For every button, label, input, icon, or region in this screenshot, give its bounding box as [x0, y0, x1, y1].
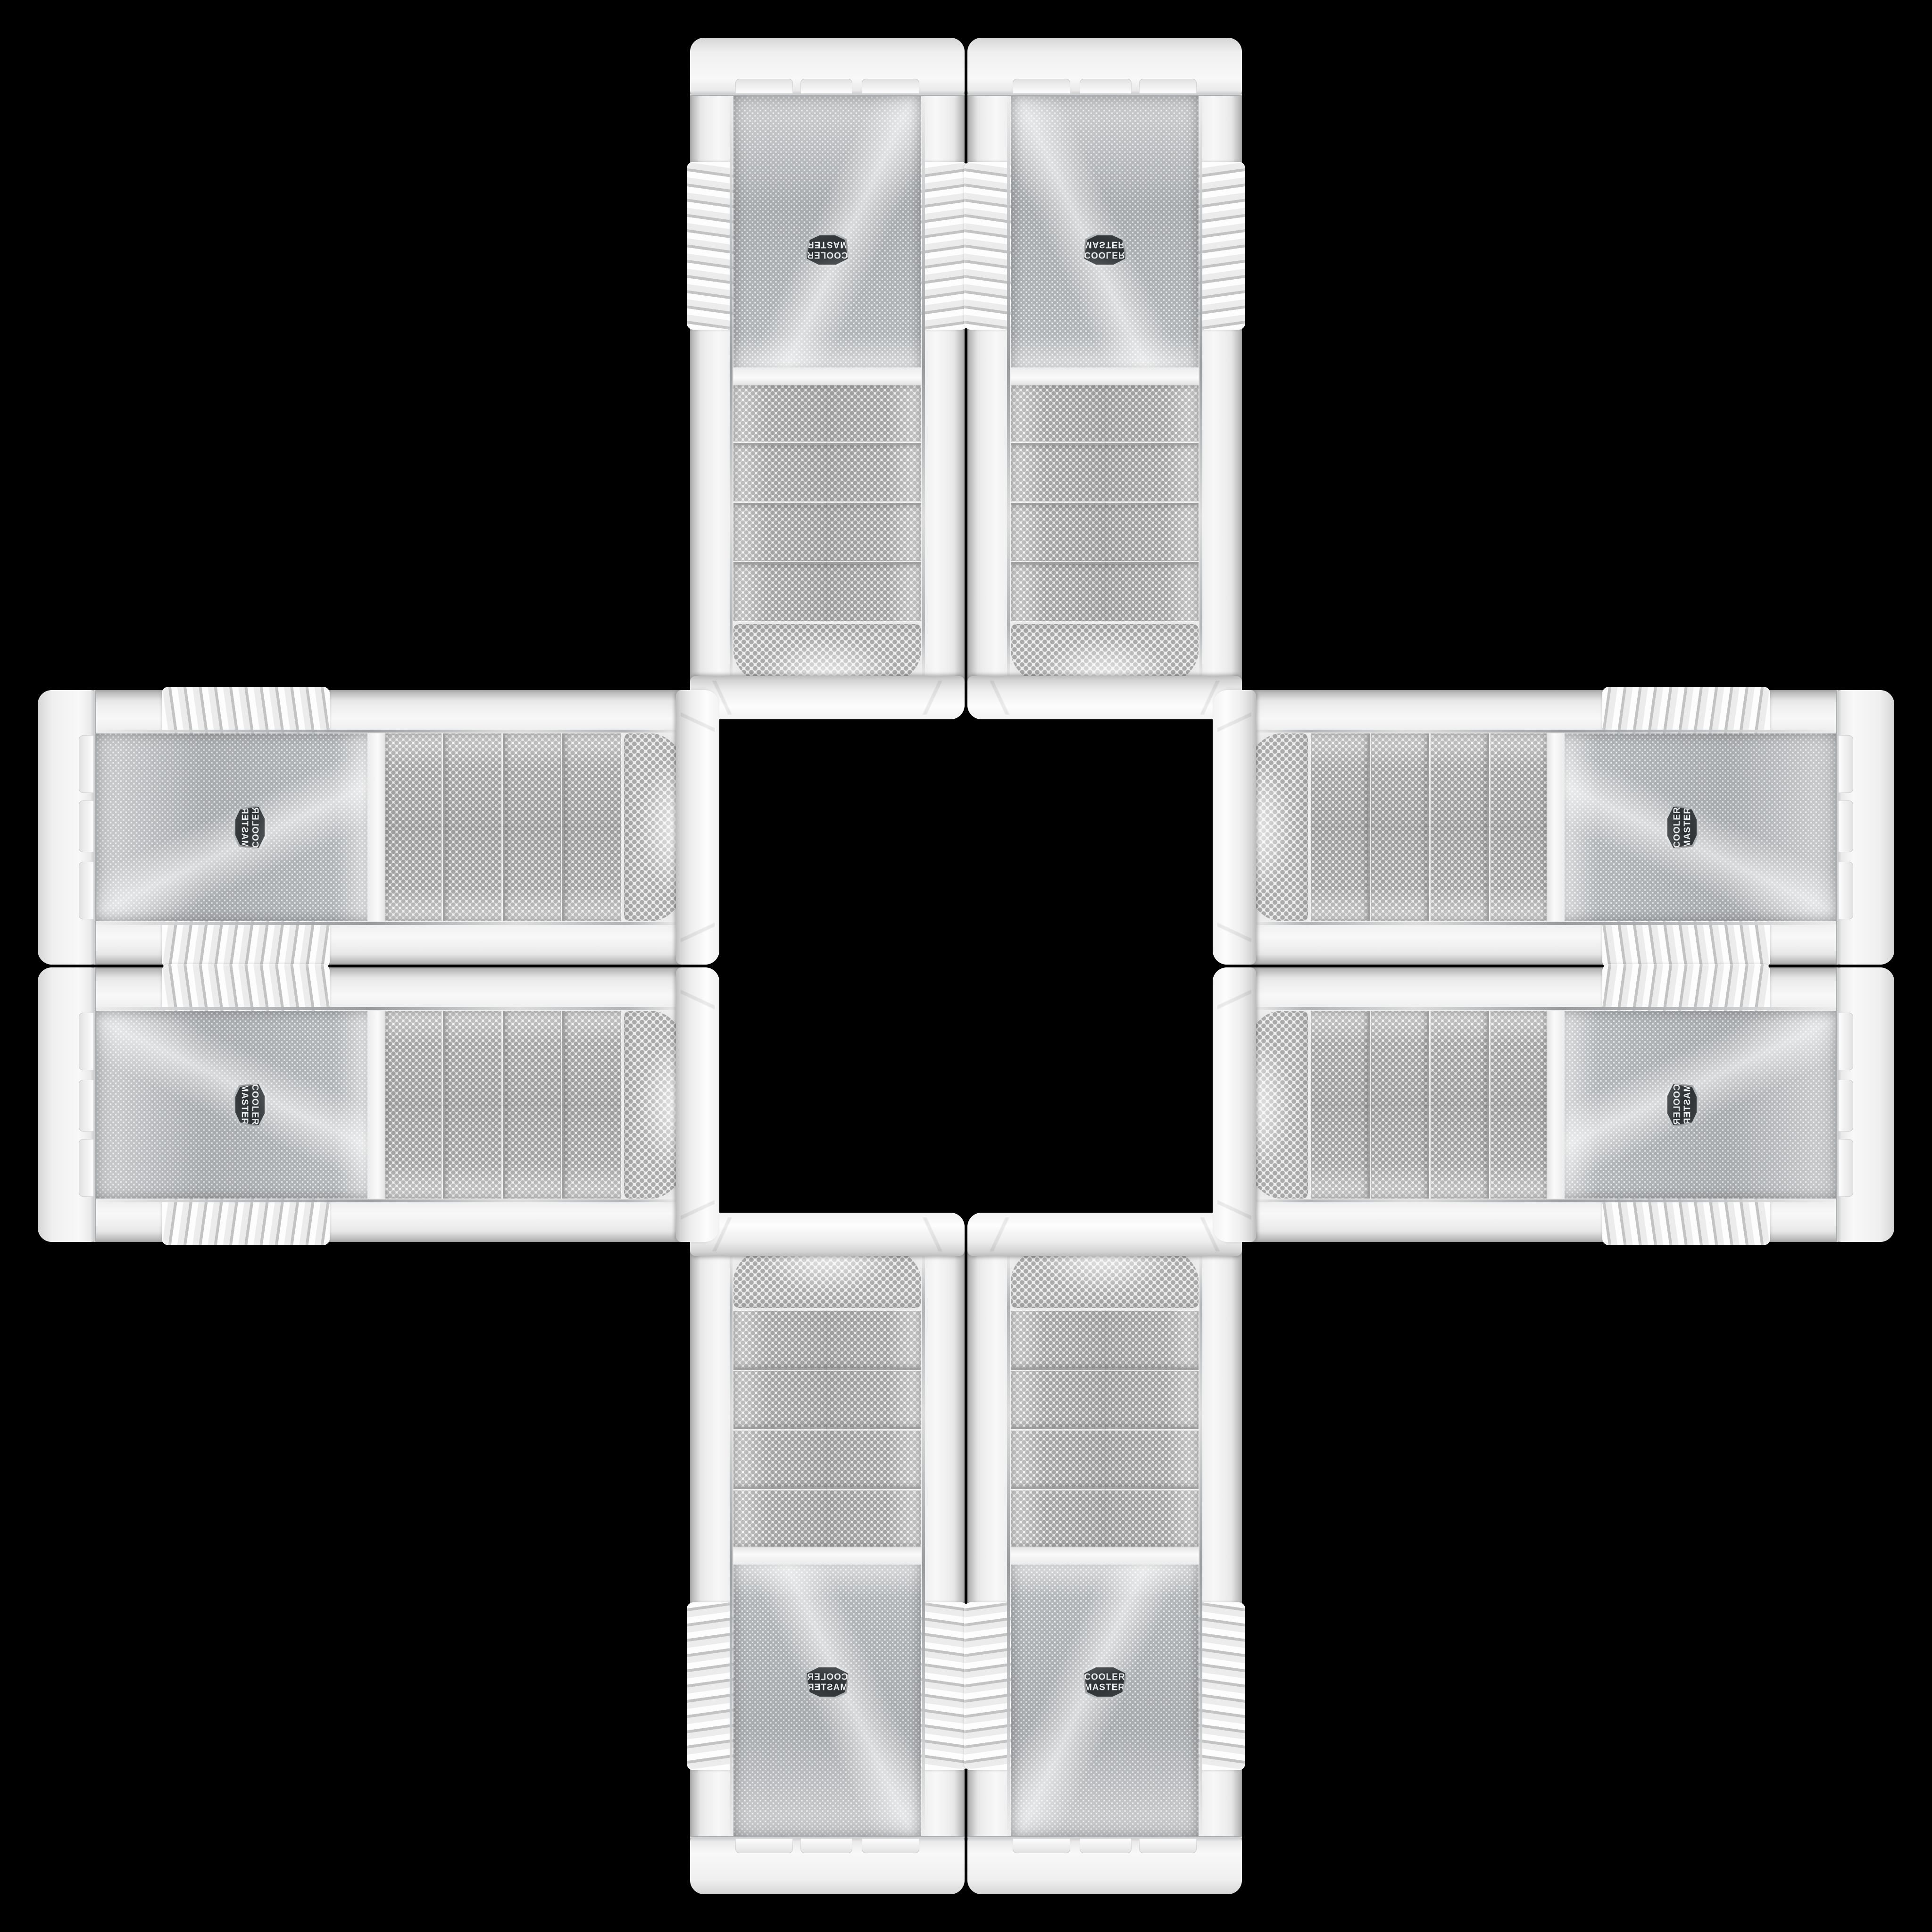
bezel-divider [367, 733, 385, 921]
cooler-master-badge: COOLER MASTER [1081, 233, 1129, 266]
drive-bay-cover [1011, 565, 1199, 623]
left-rail-grip-ribs [162, 921, 330, 968]
bottom-cap-chrome-seam [1836, 690, 1838, 965]
brand-line-2: MASTER [807, 1683, 848, 1692]
left-rail-grip-ribs [964, 162, 1011, 330]
case-panel-right-top: COOLER MASTER [1213, 690, 1894, 965]
cooler-master-badge: COOLER MASTER [1666, 1081, 1699, 1129]
right-rail-grip-ribs [1198, 1602, 1245, 1770]
case-panel-bottom-right: COOLER MASTER [967, 1213, 1242, 1894]
left-rail-grip-ribs [162, 964, 330, 1011]
drive-bay-cover [565, 733, 623, 921]
bottom-cap-tab [1839, 1139, 1853, 1197]
top-cap [967, 1213, 1242, 1256]
brand-line-1: COOLER [1673, 807, 1682, 848]
brand-line-1: COOLER [251, 1084, 260, 1125]
bottom-cap-tab [862, 79, 919, 93]
left-chrome-trim [922, 1234, 925, 1836]
drive-bay-cover [1489, 1011, 1547, 1199]
bottom-cap-tab [1839, 800, 1853, 852]
drive-bay-cover [733, 445, 921, 503]
bottom-cap-tab [1139, 79, 1197, 93]
brand-line-1: COOLER [1673, 1084, 1682, 1125]
drive-bay-cover [733, 565, 921, 623]
right-rail-grip-ribs [1602, 1198, 1770, 1245]
bezel-divider [1547, 733, 1565, 921]
bottom-cap [967, 1836, 1242, 1894]
product-collage: COOLER MASTER [0, 0, 1932, 1932]
left-chrome-trim [1007, 1234, 1010, 1836]
brand-line-2: MASTER [1084, 1683, 1125, 1692]
brand-line-2: MASTER [241, 807, 250, 848]
drive-bay-cover [733, 1310, 921, 1368]
bottom-cap-tab [79, 1139, 93, 1197]
drive-bay-cover [1370, 733, 1428, 921]
brand-line-2: MASTER [807, 241, 848, 250]
drive-bay-cover [1011, 1310, 1199, 1368]
left-chrome-trim [922, 96, 925, 698]
bottom-cap-tab [1839, 862, 1853, 919]
drive-bay-cover [565, 1011, 623, 1199]
drive-bay-cover [505, 1011, 563, 1199]
bezel-divider [733, 1547, 921, 1565]
front-intake-mesh: COOLER MASTER [1565, 1011, 1836, 1199]
bottom-cap-tab [1839, 1080, 1853, 1132]
right-chrome-trim [1199, 96, 1202, 698]
brand-line-1: COOLER [1084, 1673, 1125, 1682]
drive-bay-cover [445, 733, 503, 921]
case-panel-right-bottom: COOLER MASTER [1213, 967, 1894, 1242]
pc-case-front-panel: COOLER MASTER [1213, 967, 1894, 1242]
bottom-cap-tab [1080, 79, 1132, 93]
drive-bay-cover [1429, 1011, 1487, 1199]
left-chrome-trim [1007, 96, 1010, 698]
bottom-cap-tab [862, 1839, 919, 1853]
drive-bay-cover [1011, 1370, 1199, 1428]
right-chrome-trim [730, 96, 733, 698]
right-chrome-trim [730, 1234, 733, 1836]
drive-bay-cover [1310, 733, 1368, 921]
bottom-cap [38, 690, 96, 965]
cooler-master-logo-icon: COOLER MASTER [1667, 1083, 1697, 1127]
cooler-master-badge: COOLER MASTER [803, 1666, 851, 1699]
right-chrome-trim [1199, 1234, 1202, 1836]
front-intake-mesh: COOLER MASTER [96, 1011, 367, 1199]
cooler-master-badge: COOLER MASTER [803, 233, 851, 266]
bottom-cap-tab [1080, 1839, 1132, 1853]
drive-bay-cover [385, 733, 443, 921]
case-panel-top-right: COOLER MASTER [967, 38, 1242, 719]
left-chrome-trim [96, 922, 698, 925]
cooler-master-logo-icon: COOLER MASTER [235, 1083, 265, 1127]
drive-bay-cover [1429, 733, 1487, 921]
bottom-cap-tab [800, 79, 852, 93]
top-cap [690, 1213, 965, 1256]
bottom-cap-chrome-seam [1836, 967, 1838, 1242]
top-cap [1213, 967, 1256, 1242]
cooler-master-badge: COOLER MASTER [233, 1081, 266, 1129]
cooler-master-logo-icon: COOLER MASTER [1083, 1667, 1127, 1697]
cooler-master-logo-icon: COOLER MASTER [1667, 805, 1697, 849]
drive-bay-covers [733, 385, 921, 622]
drive-bay-cover [1489, 733, 1547, 921]
bottom-cap-tab [1139, 1839, 1197, 1853]
bottom-cap [967, 38, 1242, 96]
top-cap [676, 967, 719, 1242]
bottom-cap-chrome-seam [967, 1836, 1242, 1838]
drive-bay-cover [733, 1429, 921, 1487]
front-intake-mesh: COOLER MASTER [733, 1565, 921, 1836]
front-intake-mesh: COOLER MASTER [96, 733, 367, 921]
cooler-master-badge: COOLER MASTER [1081, 1666, 1129, 1699]
drive-bay-covers [1310, 733, 1547, 921]
drive-bay-covers [1011, 385, 1199, 622]
bottom-cap-tab [800, 1839, 852, 1853]
right-chrome-trim [1234, 1199, 1836, 1202]
right-rail-grip-ribs [1602, 687, 1770, 734]
bottom-cap-tab [735, 79, 793, 93]
top-cap [967, 676, 1242, 719]
drive-bay-cover [1011, 385, 1199, 443]
brand-line-2: MASTER [1683, 807, 1692, 848]
drive-bay-cover [385, 1011, 443, 1199]
drive-bay-cover [505, 733, 563, 921]
right-rail-grip-ribs [687, 1602, 734, 1770]
left-rail-grip-ribs [1602, 964, 1770, 1011]
front-intake-mesh: COOLER MASTER [1011, 96, 1199, 367]
top-cap [676, 690, 719, 965]
drive-bay-covers [733, 1310, 921, 1547]
right-chrome-trim [1234, 730, 1836, 733]
drive-bay-cover [445, 1011, 503, 1199]
right-chrome-trim [96, 730, 698, 733]
bottom-cap-chrome-seam [967, 94, 1242, 96]
bezel-divider [367, 1011, 385, 1199]
drive-bay-cover [1011, 1489, 1199, 1547]
cooler-master-logo-icon: COOLER MASTER [1083, 235, 1127, 265]
bottom-cap [1836, 967, 1894, 1242]
bottom-cap-tab [1839, 1013, 1853, 1070]
left-rail-grip-ribs [921, 162, 968, 330]
left-chrome-trim [96, 1007, 698, 1010]
bottom-cap-tab [79, 800, 93, 852]
brand-line-1: COOLER [807, 251, 848, 260]
bottom-cap [690, 1836, 965, 1894]
bottom-cap-chrome-seam [94, 690, 96, 965]
bezel-divider [733, 367, 921, 385]
brand-line-1: COOLER [807, 1673, 848, 1682]
right-rail-grip-ribs [162, 687, 330, 734]
bottom-cap-tab [79, 862, 93, 919]
brand-line-2: MASTER [1084, 241, 1125, 250]
drive-bay-covers [385, 733, 622, 921]
right-rail-grip-ribs [162, 1198, 330, 1245]
drive-bay-cover [1011, 1429, 1199, 1487]
bottom-cap-chrome-seam [690, 94, 965, 96]
bezel-divider [1547, 1011, 1565, 1199]
front-intake-mesh: COOLER MASTER [1565, 733, 1836, 921]
bottom-cap-tab [735, 1839, 793, 1853]
bottom-cap-chrome-seam [94, 967, 96, 1242]
drive-bay-covers [385, 1011, 622, 1199]
cooler-master-badge: COOLER MASTER [1666, 803, 1699, 851]
drive-bay-cover [733, 505, 921, 563]
drive-bay-cover [733, 1370, 921, 1428]
bottom-cap-tab [1839, 735, 1853, 793]
bottom-cap-chrome-seam [690, 1836, 965, 1838]
bottom-cap-tab [1013, 1839, 1070, 1853]
pc-case-front-panel: COOLER MASTER [1213, 690, 1894, 965]
brand-line-1: COOLER [251, 807, 260, 848]
pc-case-front-panel: COOLER MASTER [38, 967, 719, 1242]
cooler-master-logo-icon: COOLER MASTER [235, 805, 265, 849]
right-rail-grip-ribs [687, 162, 734, 330]
drive-bay-cover [733, 385, 921, 443]
case-panel-bottom-left: COOLER MASTER [690, 1213, 965, 1894]
drive-bay-cover [1310, 1011, 1368, 1199]
right-chrome-trim [96, 1199, 698, 1202]
bottom-cap [38, 967, 96, 1242]
bottom-cap-tab [79, 735, 93, 793]
top-cap [690, 676, 965, 719]
left-chrome-trim [1234, 1007, 1836, 1010]
brand-line-2: MASTER [1683, 1084, 1692, 1125]
left-chrome-trim [1234, 922, 1836, 925]
bottom-cap-tab [79, 1080, 93, 1132]
brand-line-1: COOLER [1084, 251, 1125, 260]
drive-bay-cover [1011, 505, 1199, 563]
top-cap [1213, 690, 1256, 965]
bottom-cap-tab [79, 1013, 93, 1070]
bezel-divider [1011, 1547, 1199, 1565]
left-rail-grip-ribs [1602, 921, 1770, 968]
front-intake-mesh: COOLER MASTER [733, 96, 921, 367]
pc-case-front-panel: COOLER MASTER [967, 38, 1242, 719]
drive-bay-covers [1310, 1011, 1547, 1199]
case-panel-top-left: COOLER MASTER [690, 38, 965, 719]
left-rail-grip-ribs [964, 1602, 1011, 1770]
drive-bay-cover [1011, 445, 1199, 503]
brand-line-2: MASTER [241, 1084, 250, 1125]
bottom-cap [1836, 690, 1894, 965]
bezel-divider [1011, 367, 1199, 385]
drive-bay-cover [1370, 1011, 1428, 1199]
case-panel-left-top: COOLER MASTER [38, 690, 719, 965]
pc-case-front-panel: COOLER MASTER [38, 690, 719, 965]
cooler-master-badge: COOLER MASTER [233, 803, 266, 851]
drive-bay-covers [1011, 1310, 1199, 1547]
case-panel-left-bottom: COOLER MASTER [38, 967, 719, 1242]
left-rail-grip-ribs [921, 1602, 968, 1770]
drive-bay-cover [733, 1489, 921, 1547]
right-rail-grip-ribs [1198, 162, 1245, 330]
front-intake-mesh: COOLER MASTER [1011, 1565, 1199, 1836]
pc-case-front-panel: COOLER MASTER [690, 38, 965, 719]
pc-case-front-panel: COOLER MASTER [690, 1213, 965, 1894]
cooler-master-logo-icon: COOLER MASTER [805, 235, 849, 265]
pc-case-front-panel: COOLER MASTER [967, 1213, 1242, 1894]
bottom-cap-tab [1013, 79, 1070, 93]
cooler-master-logo-icon: COOLER MASTER [805, 1667, 849, 1697]
bottom-cap [690, 38, 965, 96]
